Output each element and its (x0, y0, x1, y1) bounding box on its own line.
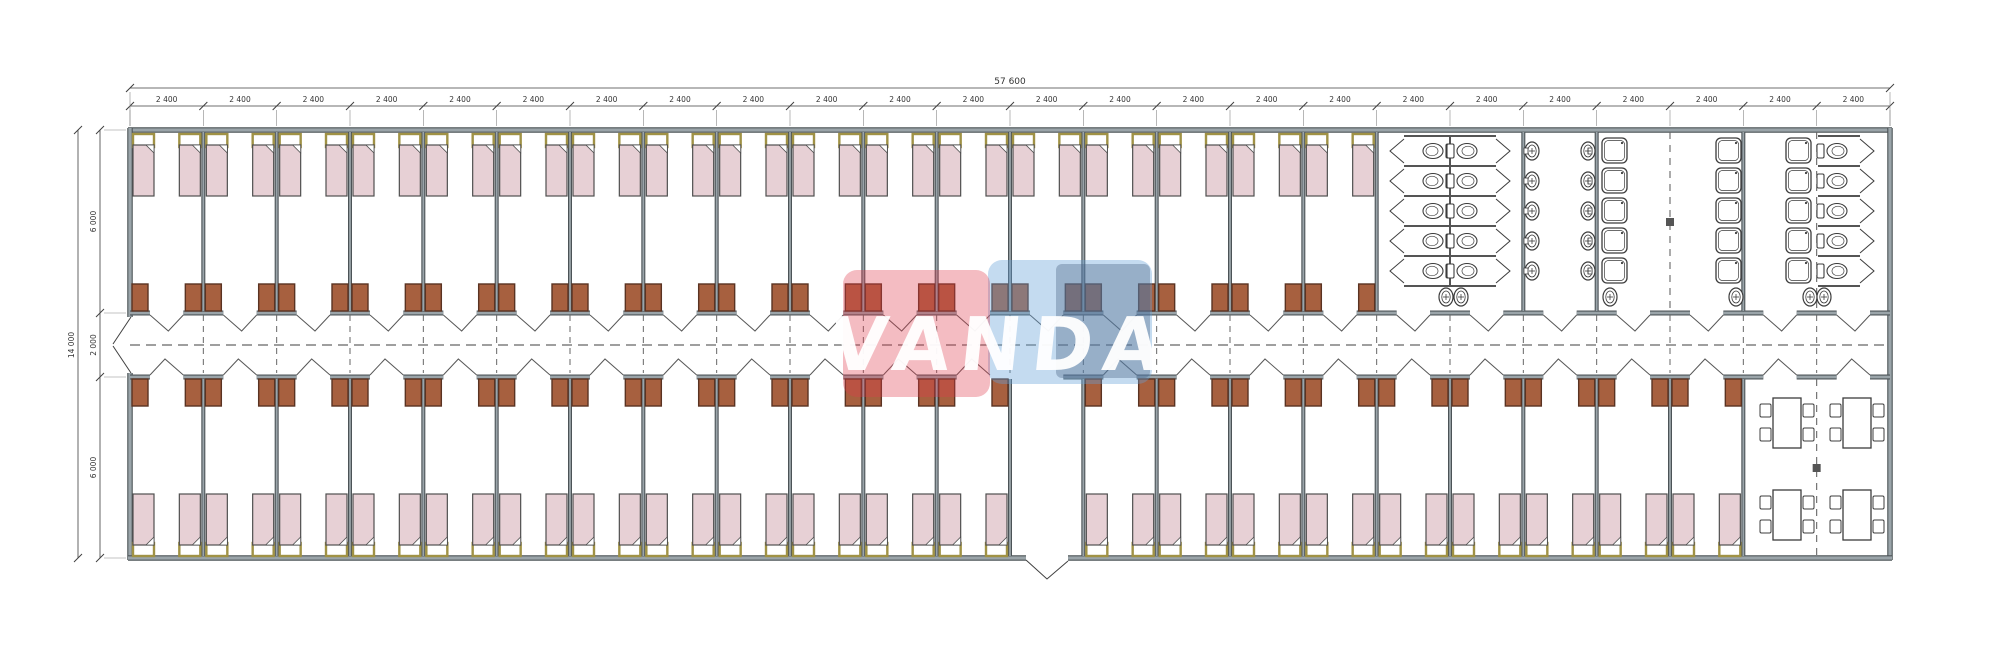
room (1232, 379, 1301, 556)
bed (206, 494, 227, 556)
bed (500, 134, 521, 196)
wardrobe (185, 284, 201, 311)
wardrobe (719, 284, 735, 311)
module-width-label: 2 400 (156, 95, 178, 104)
wardrobe (479, 379, 495, 406)
room (1599, 379, 1668, 556)
bed (866, 134, 887, 196)
vanda-watermark: VANDA (826, 260, 1175, 397)
wardrobe (1285, 284, 1301, 311)
bed (1306, 494, 1327, 556)
bed (426, 134, 447, 196)
room (132, 379, 201, 556)
bed (473, 494, 494, 556)
drawing-sheet: 57 6002 4002 4002 4002 4002 4002 4002 40… (0, 0, 2000, 654)
wardrobe (132, 379, 148, 406)
bed (1013, 134, 1034, 196)
dimension-top: 57 6002 4002 4002 4002 4002 4002 4002 40… (126, 77, 1894, 126)
wardrobe (699, 379, 715, 406)
sink (1524, 202, 1539, 220)
wardrobe (279, 284, 295, 311)
wardrobe (185, 379, 201, 406)
chair (1873, 428, 1884, 441)
sink (1603, 288, 1617, 306)
wardrobe (1359, 379, 1375, 406)
wardrobe (1305, 284, 1321, 311)
grid-marker (1666, 218, 1674, 226)
sink (1524, 232, 1539, 250)
logo-text: VANDA (826, 302, 1175, 388)
wardrobe (792, 379, 808, 406)
wardrobe (405, 284, 421, 311)
module-width-label: 2 400 (1769, 95, 1791, 104)
overall-width-label: 57 600 (994, 77, 1026, 87)
chair (1830, 404, 1841, 417)
room (645, 134, 714, 311)
toilet (1817, 144, 1847, 159)
shower-tray (1786, 228, 1811, 253)
room (939, 379, 1008, 556)
module-width-label: 2 400 (1109, 95, 1131, 104)
room (205, 134, 274, 311)
bed (1233, 134, 1254, 196)
wardrobe (132, 284, 148, 311)
wardrobe (572, 284, 588, 311)
module-width-label: 2 400 (1696, 95, 1718, 104)
height-segment-label: 6 000 (89, 211, 98, 233)
wardrobe (625, 379, 641, 406)
dining-table (1830, 490, 1884, 540)
bed (693, 134, 714, 196)
bed (1133, 494, 1154, 556)
bed (913, 134, 934, 196)
wardrobe (772, 379, 788, 406)
toilet (1447, 144, 1477, 159)
wardrobe (552, 284, 568, 311)
bed (206, 134, 227, 196)
module-width-label: 2 400 (1623, 95, 1645, 104)
bed (766, 494, 787, 556)
module-width-label: 2 400 (1476, 95, 1498, 104)
module-width-label: 2 400 (1329, 95, 1351, 104)
bed (133, 494, 154, 556)
toilet (1817, 204, 1847, 219)
shower-tray (1786, 138, 1811, 163)
room (1525, 379, 1594, 556)
bed (133, 134, 154, 196)
bed (720, 494, 741, 556)
room (425, 134, 494, 311)
wardrobe (479, 284, 495, 311)
module-width-label: 2 400 (596, 95, 618, 104)
bed (793, 494, 814, 556)
sink (1581, 232, 1595, 250)
sink (1581, 202, 1595, 220)
bed (253, 134, 274, 196)
room (719, 379, 788, 556)
room (719, 134, 788, 311)
wardrobe (572, 379, 588, 406)
bed (473, 134, 494, 196)
wardrobe (1285, 379, 1301, 406)
bed (940, 494, 961, 556)
sink (1439, 288, 1453, 306)
shower-tray (1716, 138, 1741, 163)
chair (1803, 428, 1814, 441)
wardrobe (1579, 379, 1595, 406)
wardrobe (425, 379, 441, 406)
bed (1646, 494, 1667, 556)
room (645, 379, 714, 556)
wardrobe (1652, 379, 1668, 406)
module-width-label: 2 400 (376, 95, 398, 104)
module-width-label: 2 400 (303, 95, 325, 104)
bed (1380, 494, 1401, 556)
module-width-label: 2 400 (743, 95, 765, 104)
bed (1453, 494, 1474, 556)
room (352, 379, 421, 556)
bed (1600, 494, 1621, 556)
bed (1353, 494, 1374, 556)
toilet (1447, 174, 1477, 189)
bed (1086, 494, 1107, 556)
wardrobe (332, 379, 348, 406)
module-width-label: 2 400 (523, 95, 545, 104)
chair (1873, 496, 1884, 509)
wardrobe (1305, 379, 1321, 406)
bed (280, 494, 301, 556)
room (865, 379, 934, 556)
chair (1803, 496, 1814, 509)
wardrobe (1232, 379, 1248, 406)
chair (1830, 496, 1841, 509)
shower-tray (1716, 228, 1741, 253)
wardrobe (352, 284, 368, 311)
sink (1581, 262, 1595, 280)
bed (1059, 134, 1080, 196)
bed (179, 134, 200, 196)
wardrobe (425, 284, 441, 311)
wardrobe (259, 379, 275, 406)
chair (1760, 520, 1771, 533)
shower-tray (1602, 138, 1627, 163)
wardrobe (352, 379, 368, 406)
bed (913, 494, 934, 556)
sink (1454, 288, 1468, 306)
chair (1760, 496, 1771, 509)
module-width-label: 2 400 (449, 95, 471, 104)
wardrobe (1232, 284, 1248, 311)
wardrobe (1212, 379, 1228, 406)
room (205, 379, 274, 556)
bed (1719, 494, 1740, 556)
room (572, 134, 641, 311)
wardrobe (1379, 379, 1395, 406)
sanitary-block (1390, 132, 1874, 311)
chair (1873, 404, 1884, 417)
bed (1279, 494, 1300, 556)
room (1305, 134, 1374, 311)
toilet (1447, 234, 1477, 249)
bed (646, 134, 667, 196)
shower-tray (1716, 258, 1741, 283)
room (425, 379, 494, 556)
wardrobe (1359, 284, 1375, 311)
wardrobe (1432, 379, 1448, 406)
shower-tray (1786, 198, 1811, 223)
wardrobe (205, 284, 221, 311)
wardrobe (645, 284, 661, 311)
module-width-label: 2 400 (816, 95, 838, 104)
entrance-door (1026, 560, 1068, 579)
bed (1086, 134, 1107, 196)
dining-table (1760, 490, 1814, 540)
bed (353, 494, 374, 556)
bed (1573, 494, 1594, 556)
module-width-label: 2 400 (1549, 95, 1571, 104)
bed (866, 494, 887, 556)
bed (693, 494, 714, 556)
module-width-label: 2 400 (229, 95, 251, 104)
toilet (1447, 264, 1477, 279)
wardrobe (1599, 379, 1615, 406)
bed (1673, 494, 1694, 556)
bed (326, 134, 347, 196)
bed (1426, 494, 1447, 556)
wardrobe (279, 379, 295, 406)
wardrobe (499, 284, 515, 311)
room (792, 379, 861, 556)
wardrobe (1672, 379, 1688, 406)
room (499, 134, 568, 311)
bed (1499, 494, 1520, 556)
room (279, 134, 348, 311)
wardrobe (719, 379, 735, 406)
dimension-left: 14 0006 0002 0006 000 (67, 126, 126, 562)
bed (573, 494, 594, 556)
bed (619, 494, 640, 556)
room (572, 379, 641, 556)
bed (1133, 134, 1154, 196)
room (1672, 379, 1741, 556)
room (1159, 134, 1228, 311)
shower-toilet-room (1786, 132, 1874, 311)
wardrobe (405, 379, 421, 406)
bed (179, 494, 200, 556)
floor-plan-canvas: 57 6002 4002 4002 4002 4002 4002 4002 40… (0, 0, 2000, 654)
room (1159, 379, 1228, 556)
bed (573, 134, 594, 196)
wardrobe (205, 379, 221, 406)
sink (1524, 172, 1539, 190)
height-segment-label: 2 000 (89, 334, 98, 356)
shower-tray (1786, 258, 1811, 283)
toilet (1817, 264, 1847, 279)
module-width-label: 2 400 (1403, 95, 1425, 104)
chair (1760, 404, 1771, 417)
wardrobe (1525, 379, 1541, 406)
west-corridor-door (113, 317, 131, 373)
toilet (1817, 234, 1847, 249)
shower-tray (1602, 168, 1627, 193)
wardrobe (699, 284, 715, 311)
module-width-label: 2 400 (1256, 95, 1278, 104)
bed (546, 494, 567, 556)
overall-height-label: 14 000 (67, 332, 76, 358)
wardrobe (1212, 284, 1228, 311)
bed (839, 494, 860, 556)
wardrobe (625, 284, 641, 311)
bed (619, 134, 640, 196)
chair (1803, 404, 1814, 417)
toilet (1447, 204, 1477, 219)
wardrobe (1725, 379, 1741, 406)
bed (1526, 494, 1547, 556)
chair (1830, 428, 1841, 441)
bed (1353, 134, 1374, 196)
room (1452, 379, 1521, 556)
toilet-stall-block (1390, 136, 1510, 306)
module-width-label: 2 400 (669, 95, 691, 104)
sink (1524, 142, 1539, 160)
bed (1233, 494, 1254, 556)
bed (839, 134, 860, 196)
bed (399, 134, 420, 196)
dining-table (1760, 398, 1814, 448)
module-width-label: 2 400 (1843, 95, 1865, 104)
bed (326, 494, 347, 556)
bed (1160, 494, 1181, 556)
bed (766, 134, 787, 196)
bed (940, 134, 961, 196)
shower-tray (1716, 198, 1741, 223)
shower-tray (1786, 168, 1811, 193)
sink (1524, 262, 1539, 280)
bed (353, 134, 374, 196)
chair (1873, 520, 1884, 533)
shower-tray (1716, 168, 1741, 193)
bed (500, 494, 521, 556)
module-width-label: 2 400 (1183, 95, 1205, 104)
wardrobe (772, 284, 788, 311)
module-width-label: 2 400 (1036, 95, 1058, 104)
toilet (1817, 174, 1847, 189)
bed (253, 494, 274, 556)
wardrobe (1452, 379, 1468, 406)
chair (1830, 520, 1841, 533)
washroom (1524, 142, 1595, 280)
chair (1803, 520, 1814, 533)
bed (399, 494, 420, 556)
shower-room (1602, 132, 1743, 311)
bed (1160, 134, 1181, 196)
room (1305, 379, 1374, 556)
shower-tray (1602, 258, 1627, 283)
shower-tray (1602, 198, 1627, 223)
bed (986, 134, 1007, 196)
bed (793, 134, 814, 196)
wardrobe (792, 284, 808, 311)
wardrobe (645, 379, 661, 406)
room (352, 134, 421, 311)
sink (1803, 288, 1817, 306)
dining-table (1830, 398, 1884, 448)
wardrobe (552, 379, 568, 406)
bed (986, 494, 1007, 556)
bed (546, 134, 567, 196)
room (1085, 379, 1154, 556)
room (499, 379, 568, 556)
bed (426, 494, 447, 556)
wardrobe (1505, 379, 1521, 406)
bed (1306, 134, 1327, 196)
room (279, 379, 348, 556)
bed (280, 134, 301, 196)
room (132, 134, 201, 311)
wardrobe (332, 284, 348, 311)
sink (1581, 142, 1595, 160)
sink (1729, 288, 1743, 306)
wardrobe (259, 284, 275, 311)
bed (1206, 494, 1227, 556)
shower-tray (1602, 228, 1627, 253)
grid-marker (1813, 464, 1821, 472)
module-width-label: 2 400 (889, 95, 911, 104)
height-segment-label: 6 000 (89, 457, 98, 479)
wardrobe (499, 379, 515, 406)
bed (646, 494, 667, 556)
bed (720, 134, 741, 196)
room (1232, 134, 1301, 311)
module-width-label: 2 400 (963, 95, 985, 104)
room (1379, 379, 1448, 556)
chair (1760, 428, 1771, 441)
dining-room (1760, 379, 1884, 556)
bed (1279, 134, 1300, 196)
sink (1817, 288, 1831, 306)
bed (1206, 134, 1227, 196)
sink (1581, 172, 1595, 190)
